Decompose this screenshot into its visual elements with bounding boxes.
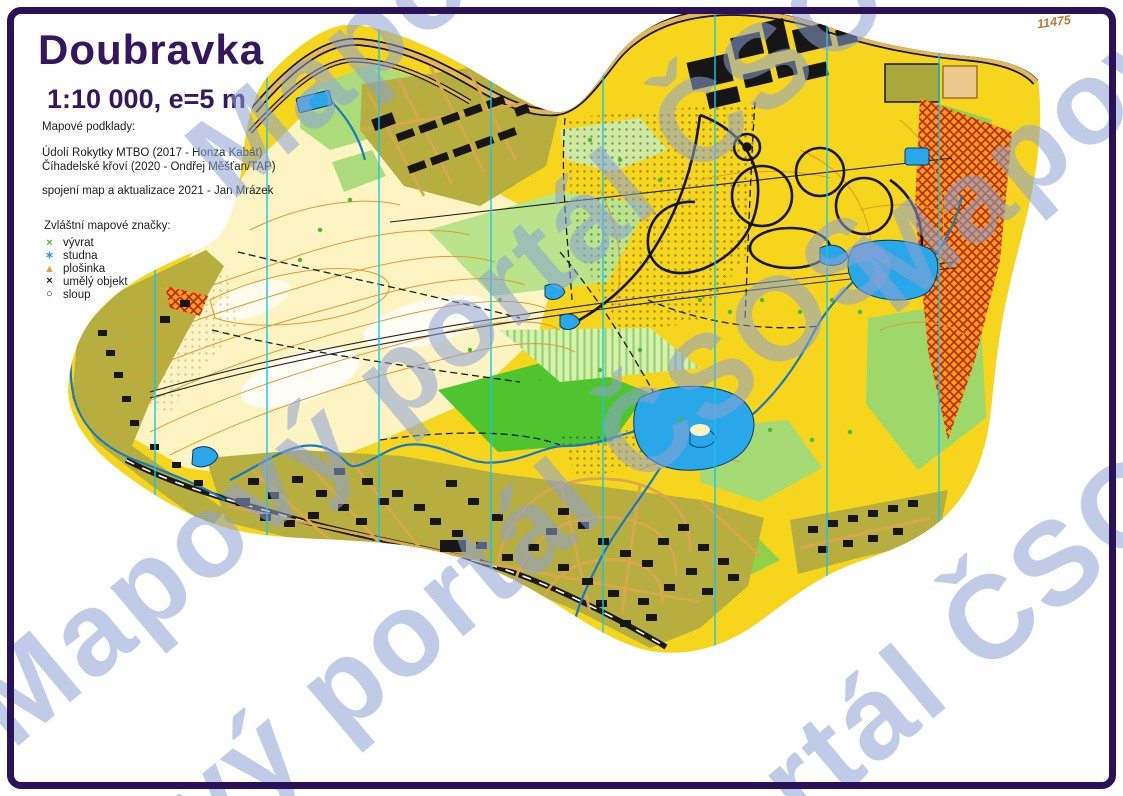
map-image (0, 0, 1123, 796)
map-lake-island (690, 424, 710, 436)
legend: Zvláštní mapové značky: × vývrat ✶ studn… (44, 220, 171, 301)
legend-item: × umělý objekt (44, 275, 171, 288)
pole-icon: ○ (44, 288, 55, 301)
manmade-object-icon: × (44, 275, 55, 288)
legend-item: ✶ studna (44, 250, 171, 263)
legend-item-label: umělý objekt (63, 276, 128, 288)
windthrow-icon: × (44, 237, 55, 250)
well-icon: ✶ (44, 250, 55, 263)
legend-item-label: sloup (63, 289, 91, 301)
legend-item-label: plošinka (63, 263, 105, 275)
source-line-2: Číhadelské křoví (2020 - Ondřej Měšťan/T… (42, 160, 276, 174)
sources-heading: Mapové podklady: (42, 120, 135, 134)
legend-heading: Zvláštní mapové značky: (44, 220, 171, 232)
legend-item-label: vývrat (63, 237, 94, 249)
source-line-1: Údolí Rokytky MTBO (2017 - Honza Kabát) (42, 146, 263, 160)
map-sheet-page: Doubravka 1:10 000, e=5 m Mapové podklad… (0, 0, 1123, 796)
legend-item: ○ sloup (44, 288, 171, 301)
legend-item-label: studna (63, 250, 98, 262)
legend-item: × vývrat (44, 237, 171, 250)
platform-icon: ▲ (44, 263, 55, 276)
legend-item: ▲ plošinka (44, 263, 171, 276)
revision-line: spojení map a aktualizace 2021 - Jan Mrá… (42, 184, 273, 198)
map-title: Doubravka (38, 26, 264, 74)
map-scale: 1:10 000, e=5 m (47, 84, 246, 115)
